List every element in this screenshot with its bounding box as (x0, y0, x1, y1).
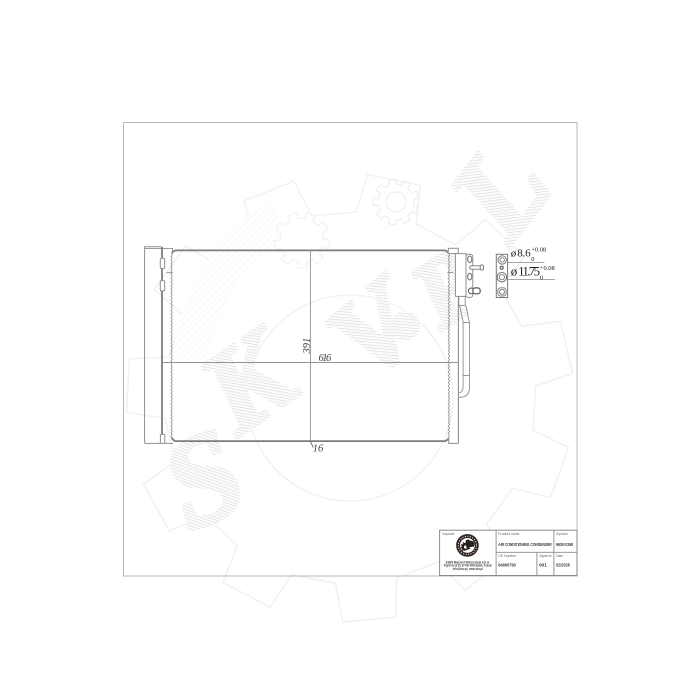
svg-text:Product name: Product name (498, 532, 519, 536)
svg-text:616: 616 (319, 353, 333, 364)
svg-text:11.75: 11.75 (518, 264, 540, 279)
svg-text:ø: ø (511, 247, 517, 259)
svg-text:0: 0 (540, 274, 543, 281)
svg-text:+0.08: +0.08 (540, 265, 555, 272)
svg-text:+0.08: +0.08 (531, 246, 546, 253)
svg-text:0: 0 (531, 256, 534, 263)
svg-text:001: 001 (539, 563, 547, 568)
svg-text:96SKV268: 96SKV268 (556, 542, 573, 547)
svg-text:info@skv.pl, www.skv.pl: info@skv.pl, www.skv.pl (453, 567, 483, 571)
svg-text:02/2025: 02/2025 (556, 563, 570, 568)
svg-text:Diagram No.: Diagram No. (539, 554, 552, 558)
svg-text:Symbol: Symbol (556, 532, 568, 536)
svg-text:16: 16 (313, 443, 324, 454)
svg-text:OE Number: OE Number (498, 554, 517, 558)
svg-text:8.6: 8.6 (517, 247, 531, 259)
svg-text:391: 391 (302, 338, 313, 355)
svg-text:Date: Date (556, 554, 563, 558)
svg-text:64000793: 64000793 (498, 563, 516, 568)
svg-text:AIR CONDITIONING CONDENSER: AIR CONDITIONING CONDENSER (498, 542, 552, 547)
svg-text:Importer: Importer (442, 532, 455, 536)
svg-text:ø: ø (511, 264, 518, 279)
